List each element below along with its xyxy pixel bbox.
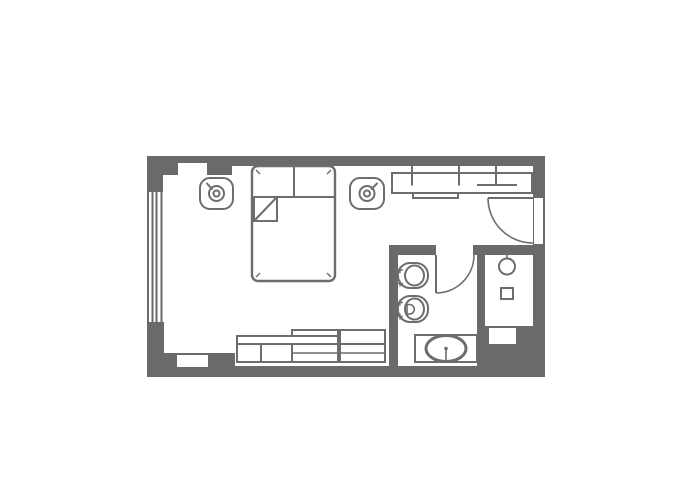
ceiling-lamp-right [350, 178, 384, 209]
ceiling-lamp-left-part [200, 178, 233, 209]
ceiling-lamp-left [200, 178, 233, 209]
window-bar [156, 192, 158, 322]
ceiling-lamp-right-part [350, 178, 384, 209]
niche-top-left [178, 163, 207, 177]
entry-door-opening [534, 198, 543, 244]
sideboard-part [237, 344, 292, 362]
double-bed [252, 166, 335, 281]
bidet [397, 296, 428, 322]
sideboard-part [237, 336, 338, 344]
wall-bathroom-west [389, 245, 398, 377]
floor-plan-svg [0, 0, 700, 500]
window-left [147, 192, 163, 322]
sink-vanity [415, 335, 477, 363]
shower-part [501, 288, 513, 299]
sink-vanity-part [444, 347, 448, 351]
niche-shower-south [489, 328, 516, 344]
window-bar [152, 192, 154, 322]
niche-bottom-left [177, 355, 208, 367]
sideboard-part [340, 330, 385, 344]
window-bar [147, 192, 149, 322]
window-bar [161, 192, 163, 322]
wall-left-upper [147, 156, 163, 193]
page-background [0, 0, 700, 500]
wardrobe-part [413, 193, 458, 198]
wall-shower-divider [477, 255, 485, 326]
wall-right [533, 156, 545, 377]
bathroom-door-opening [436, 245, 473, 255]
toilet [397, 263, 428, 288]
floor-plan-canvas [0, 0, 700, 500]
